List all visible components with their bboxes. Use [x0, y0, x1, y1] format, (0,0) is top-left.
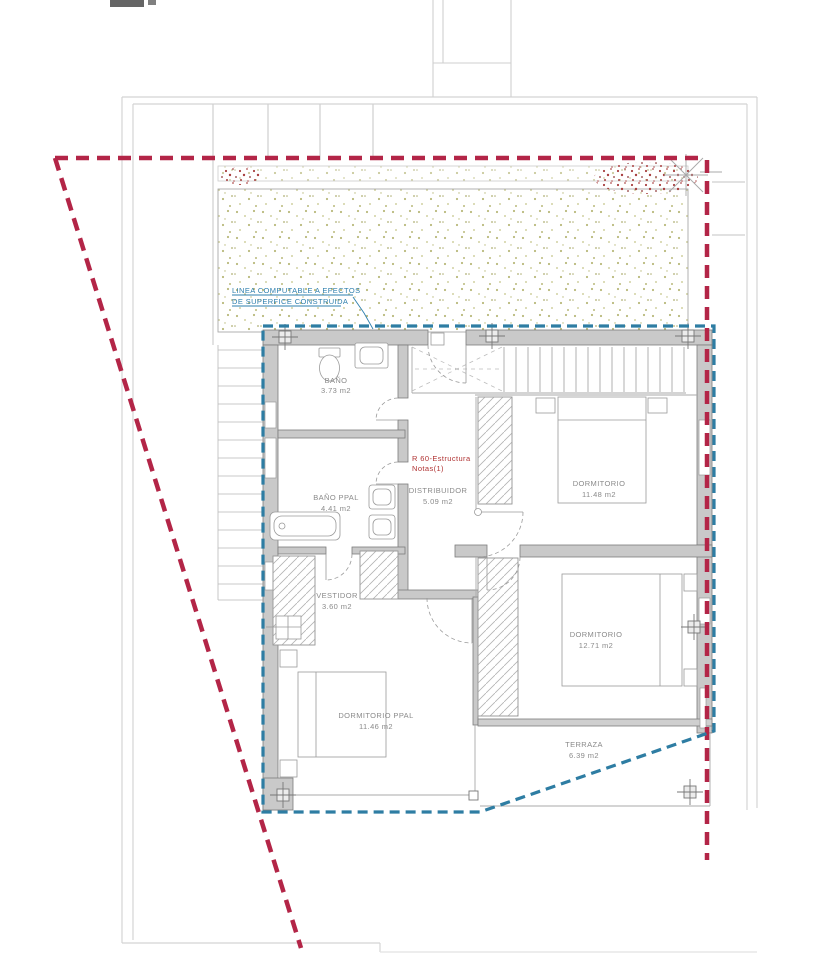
bathtub-fixture	[270, 512, 340, 540]
room-area-bano-ppal: 4.41 m2	[321, 504, 351, 513]
chimney-outline	[433, 0, 511, 97]
exterior-steps	[218, 345, 263, 600]
room-label-terraza: TERRAZA	[565, 740, 603, 749]
room-area-dormitorio-ppal: 11.46 m2	[359, 722, 393, 731]
sink-fixture	[355, 343, 395, 539]
corner-logo-fragment	[110, 0, 156, 7]
room-label-bano-ppal: BAÑO PPAL	[313, 493, 359, 502]
room-area-dormitorio-2: 12.71 m2	[579, 641, 613, 650]
floor-plan-drawing: LINEA COMPUTABLE A EFECTOS DE SUPERFICE …	[0, 0, 831, 960]
computable-note-line1: LINEA COMPUTABLE A EFECTOS	[232, 286, 361, 295]
room-label-vestidor: VESTIDOR	[316, 591, 358, 600]
room-area-distribuidor: 5.09 m2	[423, 497, 453, 506]
room-label-distribuidor: DISTRIBUIDOR	[409, 486, 468, 495]
room-label-bano: BAÑO	[325, 376, 348, 385]
room-area-vestidor: 3.60 m2	[322, 602, 352, 611]
room-label-dormitorio-1: DORMITORIO	[573, 479, 626, 488]
room-area-dormitorio-1: 11.48 m2	[582, 490, 616, 499]
room-area-terraza: 6.39 m2	[569, 751, 599, 760]
computable-note-line2: DE SUPERFICE CONSTRUIDA	[232, 297, 348, 306]
room-label-dormitorio-2: DORMITORIO	[570, 630, 623, 639]
room-label-dormitorio-ppal: DORMITORIO PPAL	[338, 711, 413, 720]
structure-note-line1: R 60-Estructura	[412, 454, 471, 463]
structure-note-line2: Notas(1)	[412, 464, 444, 473]
floor-plan-canvas: LINEA COMPUTABLE A EFECTOS DE SUPERFICE …	[0, 0, 831, 960]
room-area-bano: 3.73 m2	[321, 386, 351, 395]
stairs-symbol	[412, 347, 684, 392]
